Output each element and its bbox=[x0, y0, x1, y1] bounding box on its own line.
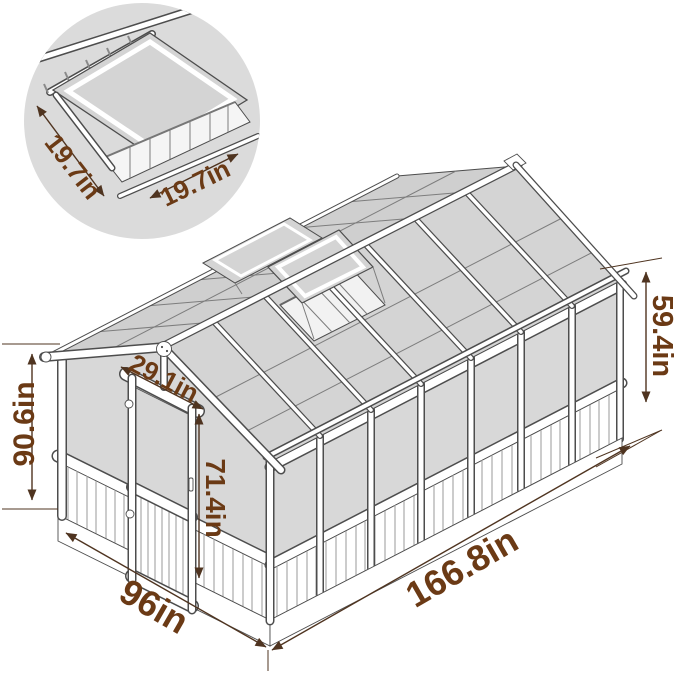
diagram-canvas: 90.6in 96in 166.8in 59.4in 29.1in 71.4in bbox=[0, 0, 679, 673]
label-total-height: 90.6in bbox=[8, 381, 41, 466]
greenhouse-dimension-diagram: 90.6in 96in 166.8in 59.4in 29.1in 71.4in bbox=[0, 0, 679, 673]
label-eave-height: 59.4in bbox=[646, 295, 678, 377]
door-handle bbox=[189, 478, 193, 491]
detail-circle-inset: 19.7in 19.7in bbox=[24, 3, 260, 239]
eave-beam-cap bbox=[41, 352, 51, 362]
dimension-total-height: 90.6in bbox=[2, 344, 60, 509]
label-door-height: 71.4in bbox=[200, 458, 231, 537]
apex-gusset-plate bbox=[157, 342, 172, 357]
door-hinge-top bbox=[125, 400, 133, 408]
door-hinge-bottom bbox=[126, 510, 134, 518]
